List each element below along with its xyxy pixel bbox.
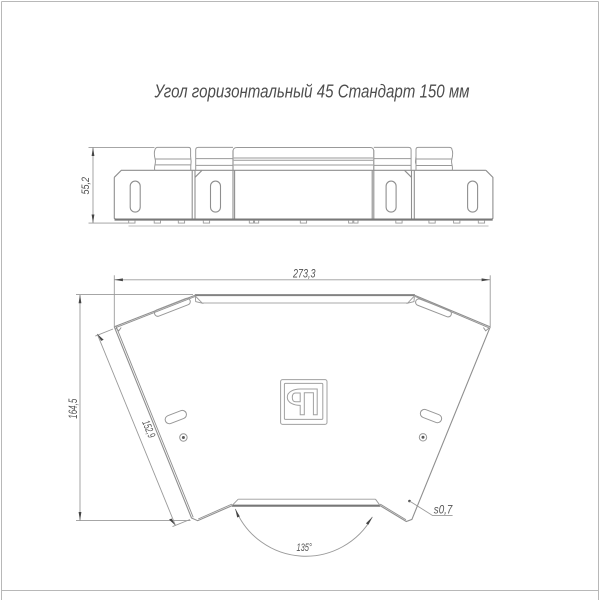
- svg-text:Угол горизонтальный 45 Стандар: Угол горизонтальный 45 Стандарт 150 мм: [154, 81, 470, 102]
- svg-text:164,5: 164,5: [66, 398, 80, 418]
- svg-text:273,3: 273,3: [292, 266, 316, 280]
- svg-text:s0,7: s0,7: [434, 503, 453, 517]
- svg-text:135°: 135°: [296, 542, 312, 554]
- svg-text:55,2: 55,2: [80, 177, 92, 195]
